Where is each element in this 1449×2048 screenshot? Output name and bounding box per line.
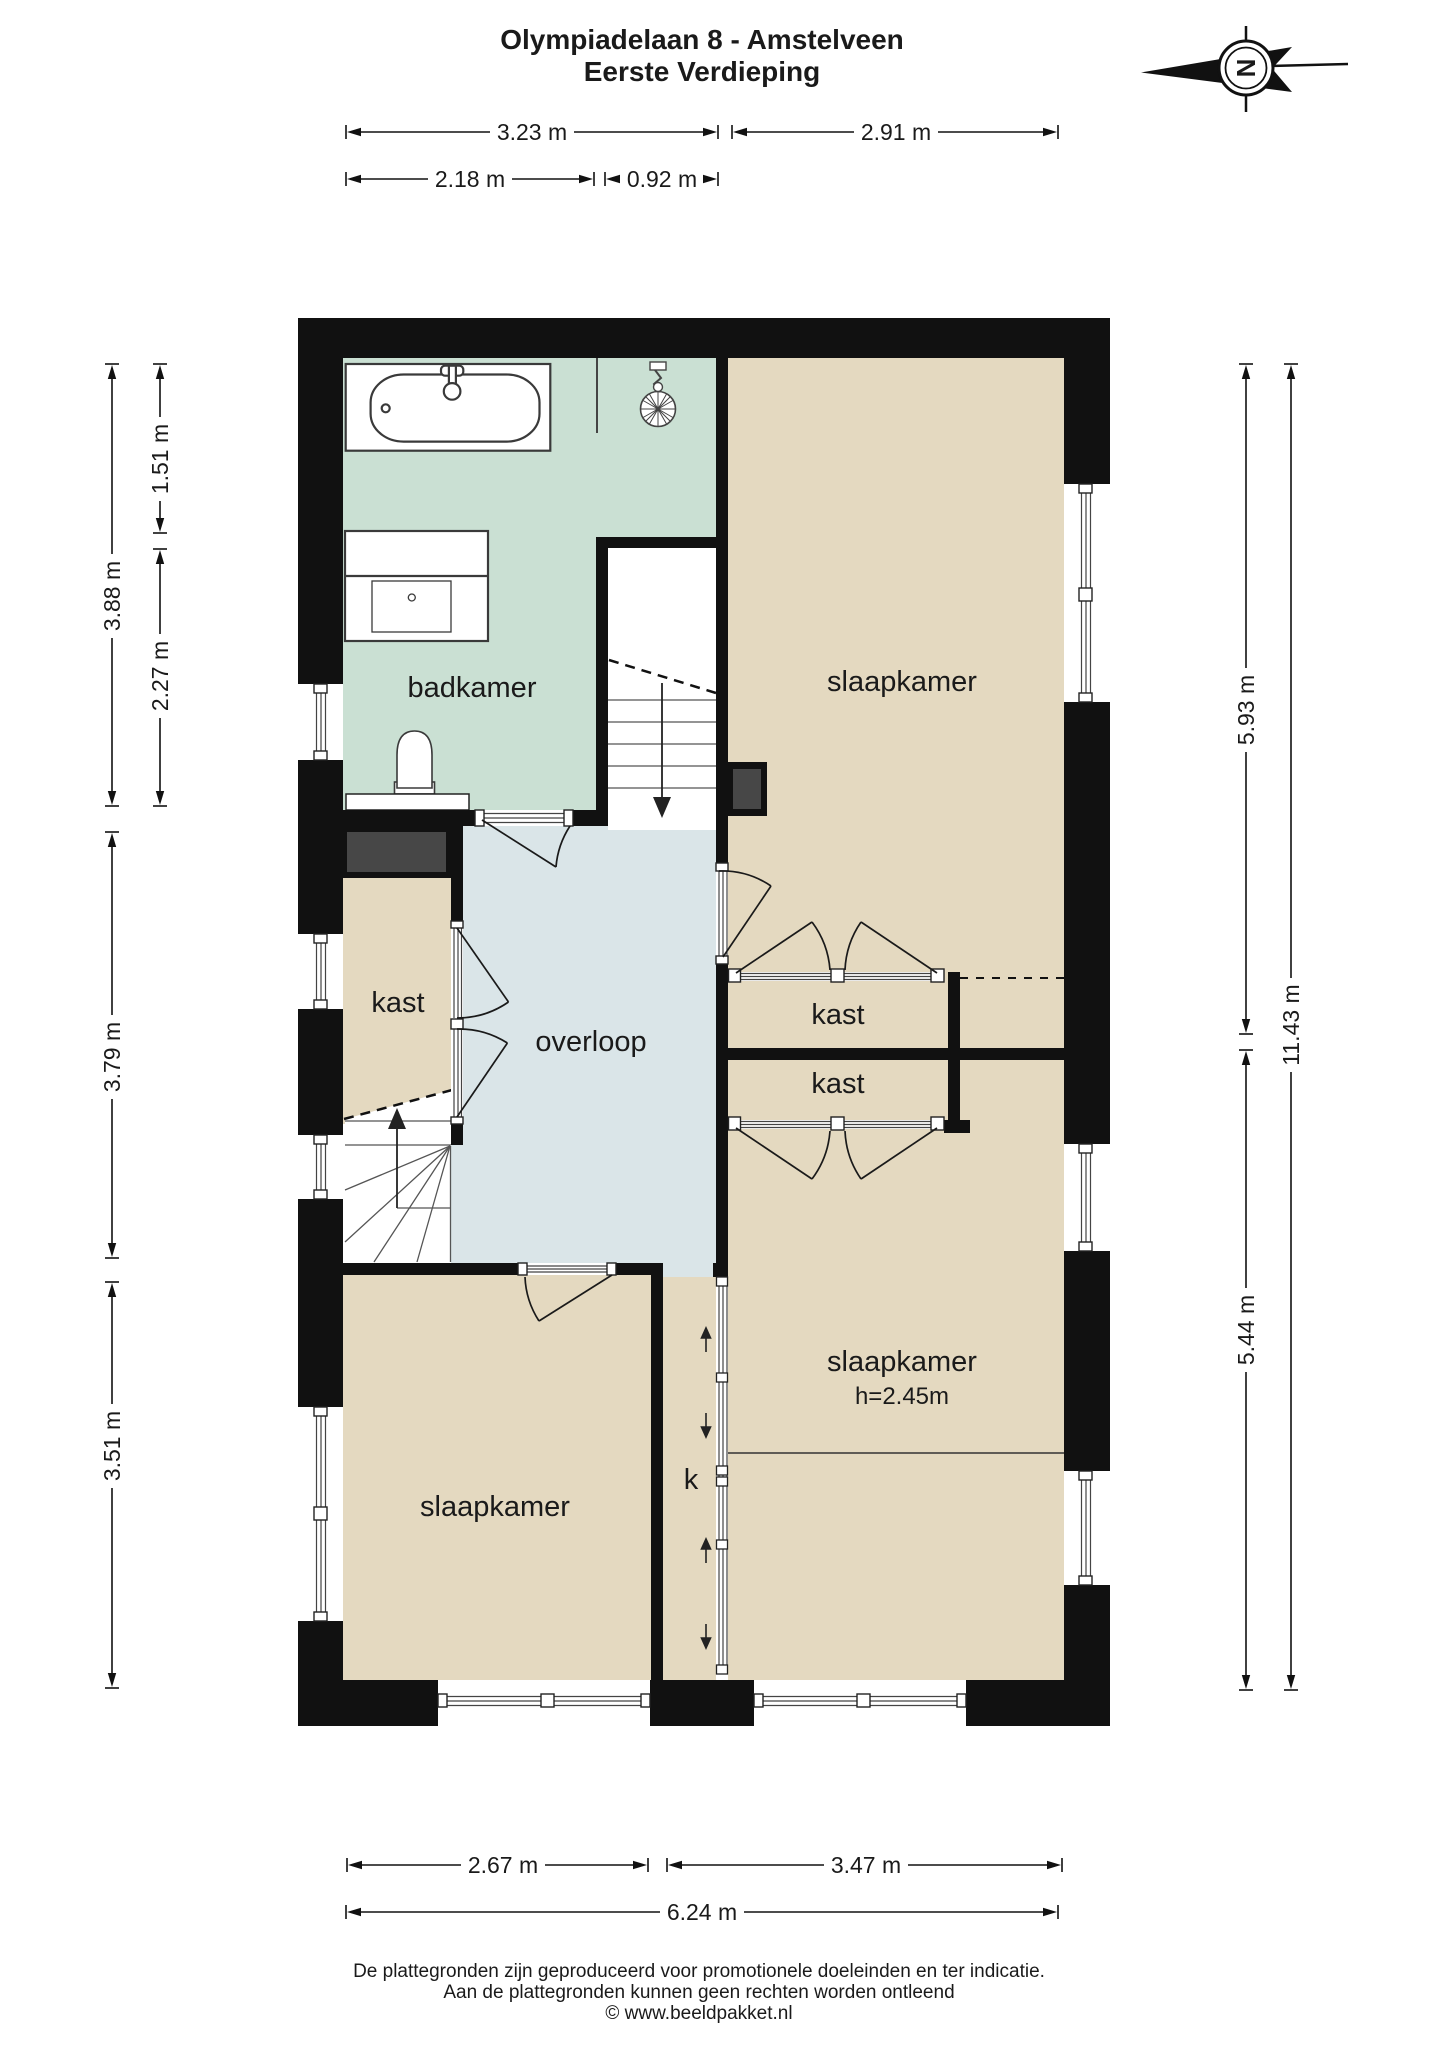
svg-text:De plattegronden zijn geproduc: De plattegronden zijn geproduceerd voor …	[353, 1961, 1045, 1982]
svg-text:2.91 m: 2.91 m	[861, 119, 931, 145]
svg-text:3.51 m: 3.51 m	[99, 1411, 125, 1481]
svg-text:3.79 m: 3.79 m	[99, 1022, 125, 1092]
svg-text:badkamer: badkamer	[408, 672, 537, 704]
svg-text:5.44 m: 5.44 m	[1233, 1295, 1259, 1365]
svg-text:2.67 m: 2.67 m	[468, 1852, 538, 1878]
svg-text:slaapkamer: slaapkamer	[827, 666, 977, 698]
svg-text:slaapkamer: slaapkamer	[827, 1346, 977, 1378]
svg-text:3.23 m: 3.23 m	[497, 119, 567, 145]
svg-text:N: N	[1231, 59, 1261, 78]
svg-text:0.92 m: 0.92 m	[627, 166, 697, 192]
svg-text:Eerste Verdieping: Eerste Verdieping	[584, 56, 821, 87]
svg-text:kast: kast	[811, 1068, 864, 1100]
svg-text:3.88 m: 3.88 m	[99, 561, 125, 631]
svg-text:6.24 m: 6.24 m	[667, 1899, 737, 1925]
svg-text:5.93 m: 5.93 m	[1233, 675, 1259, 745]
svg-text:k: k	[684, 1464, 699, 1496]
svg-text:Aan de plattegronden kunnen ge: Aan de plattegronden kunnen geen rechten…	[443, 1982, 954, 2003]
svg-text:2.27 m: 2.27 m	[147, 641, 173, 711]
svg-text:11.43 m: 11.43 m	[1278, 984, 1304, 1065]
svg-text:kast: kast	[371, 987, 424, 1019]
svg-text:kast: kast	[811, 999, 864, 1031]
svg-text:3.47 m: 3.47 m	[831, 1852, 901, 1878]
svg-text:slaapkamer: slaapkamer	[420, 1491, 570, 1523]
svg-text:1.51 m: 1.51 m	[147, 424, 173, 494]
svg-text:Olympiadelaan 8 - Amstelveen: Olympiadelaan 8 - Amstelveen	[500, 24, 904, 55]
svg-text:© www.beeldpakket.nl: © www.beeldpakket.nl	[605, 2003, 792, 2024]
svg-text:2.18 m: 2.18 m	[435, 166, 505, 192]
svg-text:h=2.45m: h=2.45m	[855, 1383, 949, 1410]
svg-text:overloop: overloop	[535, 1026, 646, 1058]
